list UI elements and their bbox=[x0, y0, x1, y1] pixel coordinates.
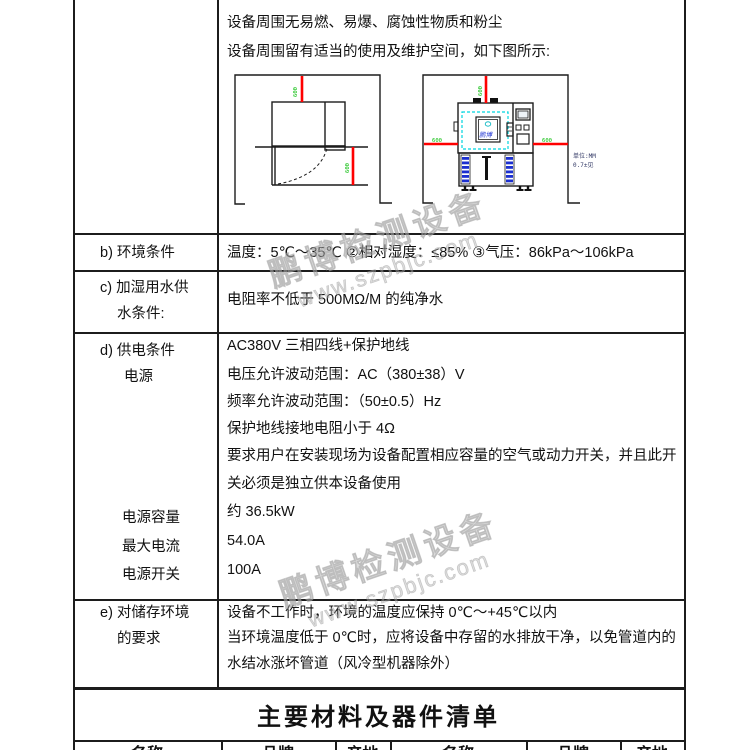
row-divider bbox=[73, 332, 686, 334]
materials-col-brand-2: 品牌 bbox=[526, 740, 620, 750]
surroundings-note-2: 设备周围留有适当的使用及维护空间，如下图所示: bbox=[227, 44, 550, 61]
table-border-left bbox=[73, 0, 75, 750]
materials-col-brand-1: 品牌 bbox=[221, 740, 335, 750]
unit-note-line1: 单位:MM bbox=[573, 152, 596, 160]
row-divider bbox=[73, 233, 686, 235]
dimension-label: 600 bbox=[293, 87, 299, 97]
materials-col-name-2: 名称 bbox=[390, 740, 526, 750]
chamber-front-view bbox=[458, 103, 533, 153]
row-b-label: b) 环境条件 bbox=[100, 245, 175, 262]
row-d-label-1: d) 供电条件 bbox=[100, 343, 175, 360]
row-d-line-5: 要求用户在安装现场为设备配置相应容量的空气或动力开关，并且此开 bbox=[227, 448, 677, 465]
row-b-content: 温度：5℃～35℃ ②相对湿度：≤85% ③气压：86kPa～106kPa bbox=[227, 245, 634, 262]
top-view-figure bbox=[235, 75, 392, 204]
row-d-switch-value: 100A bbox=[227, 562, 261, 579]
materials-col-origin-1: 产地 bbox=[335, 740, 390, 750]
row-d-line-3: 频率允许波动范围：（50±0.5）Hz bbox=[227, 394, 441, 411]
row-c-label-1: c) 加湿用水供 bbox=[100, 280, 189, 297]
feet-casters bbox=[462, 186, 532, 191]
row-d-line-4: 保护地线接地电阻小于 4Ω bbox=[227, 421, 395, 438]
row-d-line-1: AC380V 三相四线+保护地线 bbox=[227, 338, 410, 355]
cabinet-handle bbox=[482, 156, 491, 180]
row-d-line-6: 关必须是独立供本设备使用 bbox=[227, 476, 401, 493]
row-d-label-max-current: 最大电流 bbox=[122, 539, 180, 556]
row-e-line-2: 当环境温度低于 0℃时，应将设备中存留的水排放干净，以免管道内的 bbox=[227, 630, 676, 647]
row-divider bbox=[73, 270, 686, 272]
logo-badge-icon bbox=[485, 122, 491, 126]
materials-col-name-1: 名称 bbox=[73, 740, 221, 750]
row-d-max-current-value: 54.0A bbox=[227, 533, 265, 550]
front-view-figure bbox=[423, 75, 580, 203]
row-c-label-2: 水条件: bbox=[117, 306, 165, 323]
document-page: 设备周围无易燃、易爆、腐蚀性物质和粉尘 设备周围留有适当的使用及维护空间，如下图… bbox=[0, 0, 750, 750]
unit-note-line2: 0.7±见 bbox=[573, 162, 593, 169]
materials-col-origin-2: 产地 bbox=[620, 740, 684, 750]
installation-space-diagram: 600 600 bbox=[220, 70, 690, 220]
door-swing-arc bbox=[278, 148, 327, 184]
row-divider bbox=[73, 599, 686, 601]
front-view-dimensions bbox=[424, 76, 568, 144]
row-e-label-1: e) 对储存环境 bbox=[100, 605, 189, 622]
row-d-power-capacity-value: 约 36.5kW bbox=[227, 504, 295, 521]
row-d-label-switch: 电源开关 bbox=[122, 567, 180, 584]
dimension-label: 600 bbox=[542, 138, 552, 144]
table-column-divider bbox=[217, 0, 219, 688]
door-lock bbox=[507, 123, 513, 136]
panel-switch-box bbox=[517, 134, 529, 144]
dimension-label: 600 bbox=[478, 86, 484, 96]
panel-button bbox=[516, 125, 521, 130]
window-logo-text: 鹏博 bbox=[479, 131, 494, 139]
dimension-label: 600 bbox=[432, 138, 442, 144]
top-vent bbox=[473, 98, 481, 103]
row-d-label-capacity: 电源容量 bbox=[122, 510, 180, 527]
chamber-top-view bbox=[272, 102, 345, 146]
panel-button bbox=[524, 125, 529, 130]
dimension-label: 600 bbox=[345, 163, 351, 173]
room-outline bbox=[423, 75, 580, 203]
watermark-url-text: www.szpbjc.com bbox=[287, 540, 511, 639]
row-e-label-2: 的要求 bbox=[117, 631, 161, 648]
row-e-line-3: 水结冰涨坏管道（风冷型机器除外） bbox=[227, 656, 459, 673]
row-d-line-2: 电压允许波动范围：AC（380±38）V bbox=[227, 367, 465, 384]
row-d-label-2: 电源 bbox=[124, 369, 153, 386]
surroundings-note-1: 设备周围无易燃、易爆、腐蚀性物质和粉尘 bbox=[227, 15, 503, 32]
section-divider bbox=[73, 687, 686, 690]
controller-screen bbox=[518, 111, 528, 118]
row-c-content: 电阻率不低于 500MΩ/M 的纯净水 bbox=[227, 292, 443, 309]
top-vent bbox=[490, 98, 498, 103]
row-e-line-1: 设备不工作时，环境的温度应保持 0℃～+45℃以内 bbox=[227, 605, 557, 622]
materials-section-title: 主要材料及器件清单 bbox=[73, 697, 684, 732]
